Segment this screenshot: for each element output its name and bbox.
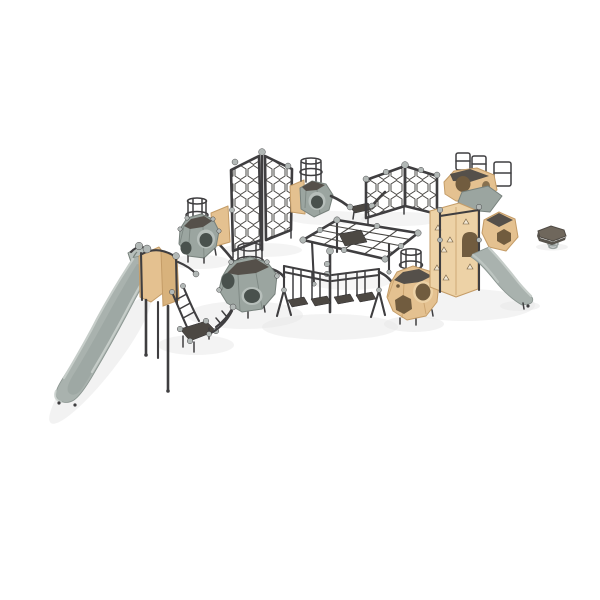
pod-opening-side [181,242,192,255]
stud [396,284,400,288]
pod-opening [244,289,260,303]
pod-opening [456,176,471,192]
pod-opening [416,284,431,301]
guard-rail [400,249,423,269]
net-panel-left [231,156,261,251]
playground-render [0,0,600,600]
pod-opening-side [222,273,235,289]
pod-opening [200,233,213,247]
render-canvas [0,0,600,600]
pod-opening [311,196,323,209]
guard-rail [300,158,322,182]
a-frame-hex-net [229,149,294,258]
